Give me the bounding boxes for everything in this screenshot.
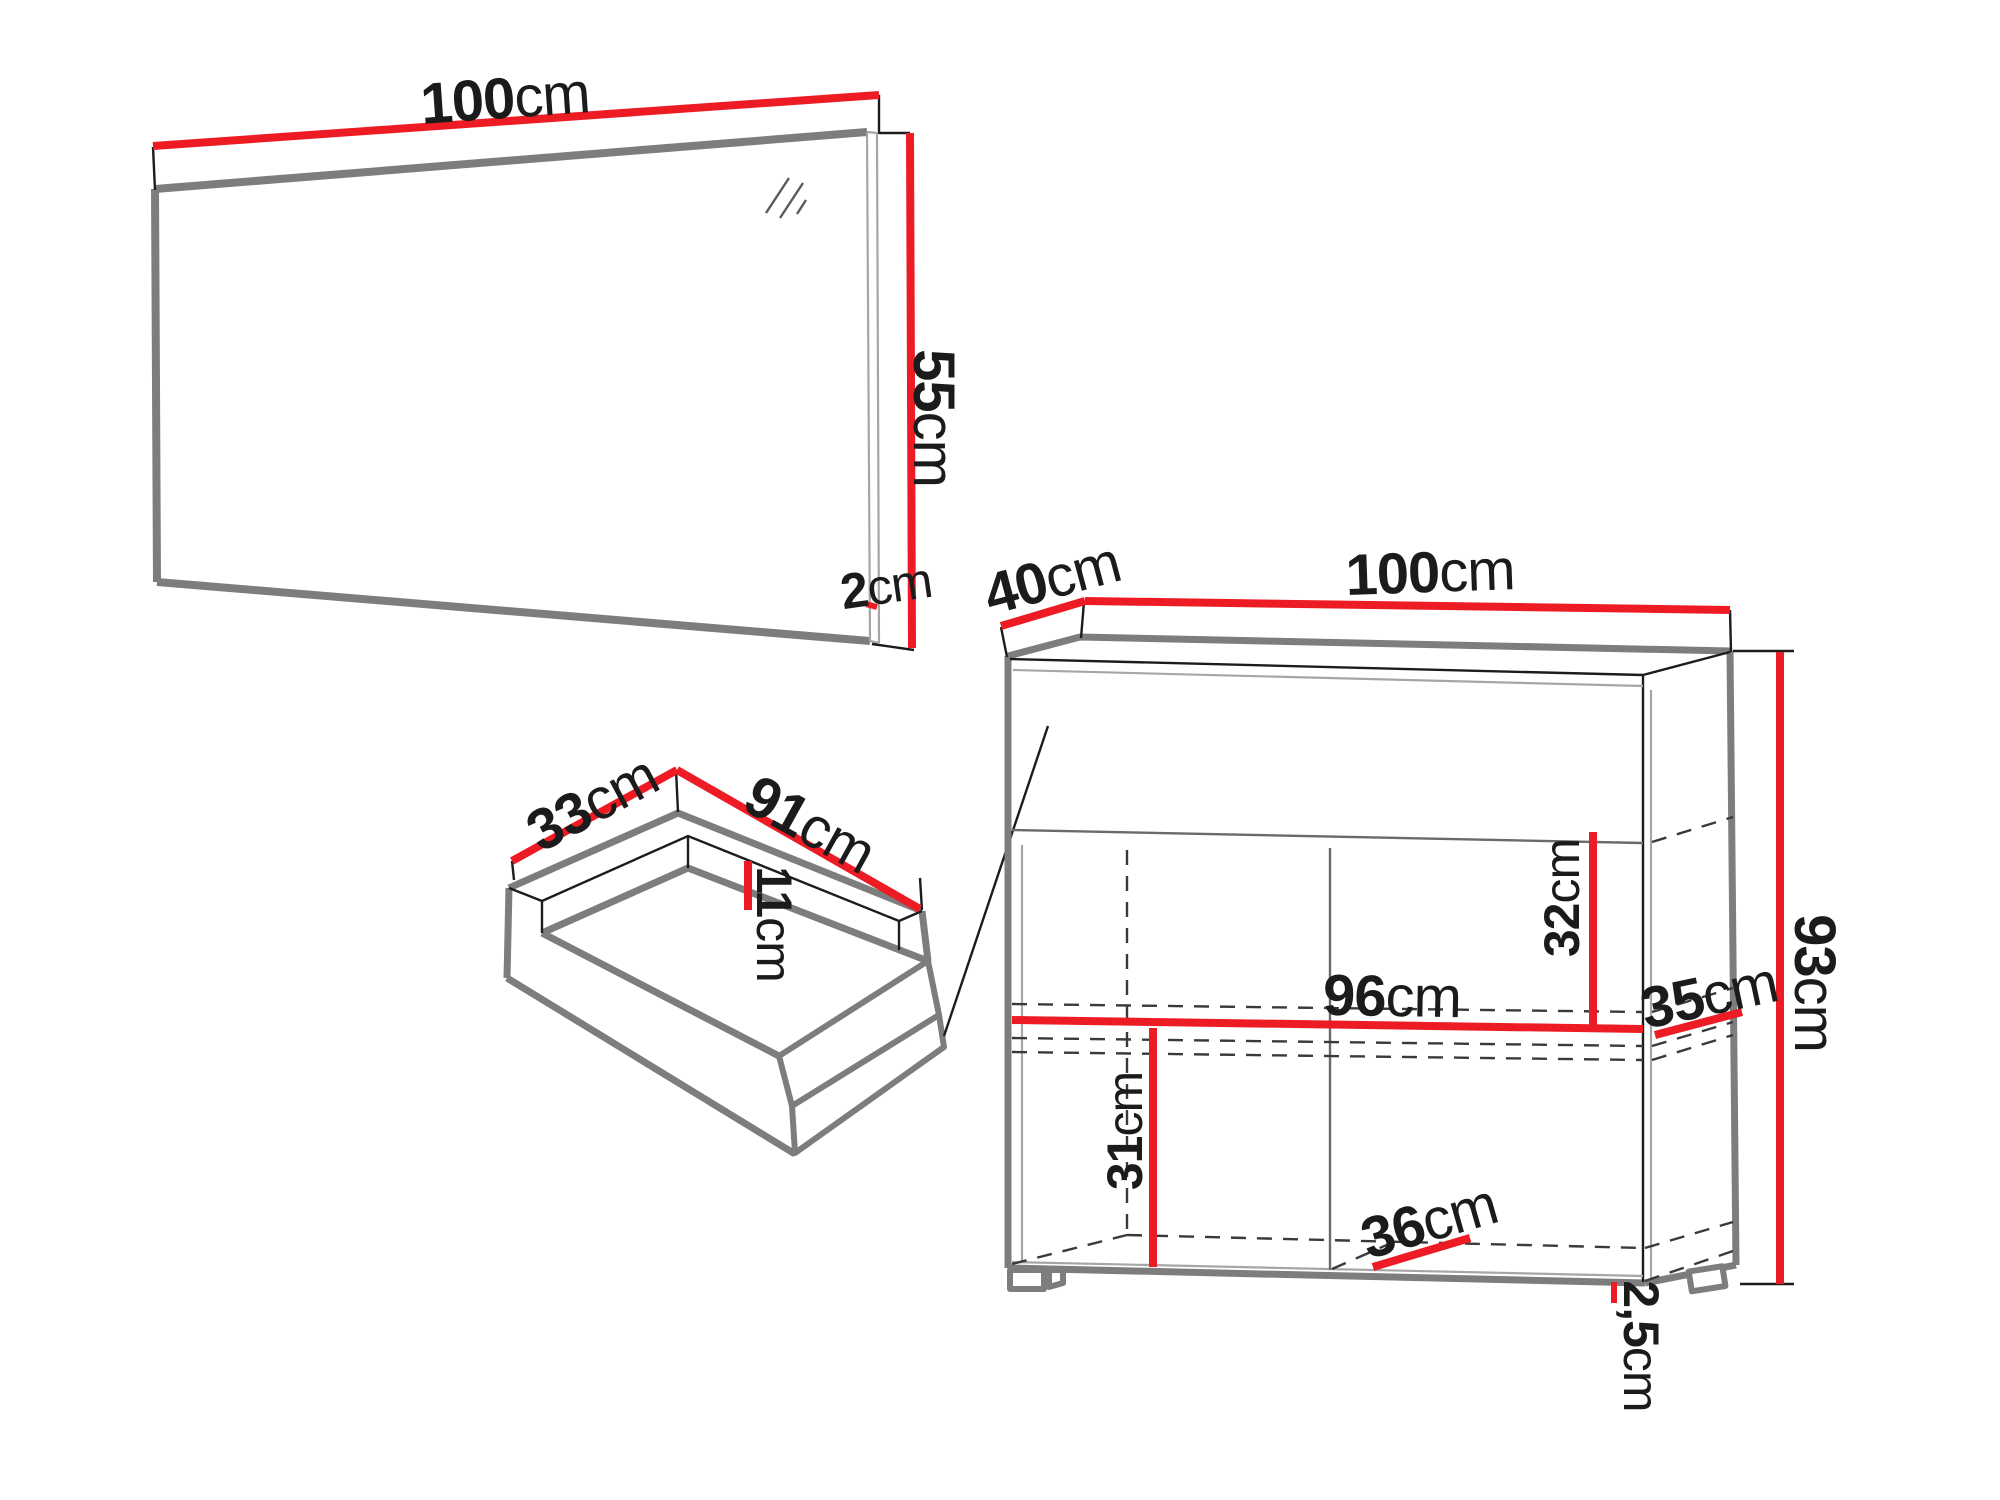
cabinet-inner-width-value: 96 — [1323, 962, 1387, 1028]
mirror-height-ext-bottom — [872, 644, 914, 650]
cabinet-inner-width-label: 96cm — [1323, 962, 1462, 1029]
cabinet-upper-inner-height-value: 32 — [1534, 904, 1590, 958]
furniture-dimension-diagram: 100cm 55cm 2cm 33cm 91cm 11cm 40cm 100cm… — [0, 0, 2000, 1500]
cabinet-right-foot — [1689, 1266, 1726, 1291]
drawer-bottom-silhouette — [507, 978, 795, 1154]
mirror-height-label: 55cm — [902, 349, 967, 487]
mirror-depth-label: 2cm — [837, 552, 935, 620]
cabinet-bottom-inner-depth-label: 36cm — [1354, 1171, 1504, 1271]
cabinet-width-value: 100 — [1344, 539, 1440, 607]
drawer-right-cap-edge — [922, 911, 928, 961]
mirror-drawing — [155, 132, 879, 643]
cabinet-width-label: 100cm — [1344, 537, 1515, 608]
cabinet-height-value: 93 — [1783, 914, 1848, 977]
mirror-height-value: 55 — [902, 349, 967, 412]
cabinet-hidden-bottom-left-diagonal — [1012, 1235, 1127, 1264]
cabinet-height-label: 93cm — [1783, 914, 1848, 1052]
cabinet-hidden-band-side-edge — [1652, 817, 1733, 842]
cabinet-lower-inner-height-value: 31 — [1097, 1136, 1153, 1190]
cabinet-depth-tick-bend — [1081, 602, 1084, 638]
mirror-left-edge — [155, 189, 157, 582]
drawer-depth-label: 33cm — [516, 742, 668, 864]
cabinet-upper-inner-height-label: 32cm — [1534, 839, 1590, 957]
dimension-labels: 100cm 55cm 2cm 33cm 91cm 11cm 40cm 100cm… — [418, 60, 1847, 1412]
drawer-height-value: 11 — [746, 866, 802, 917]
drawer-drawing — [507, 813, 944, 1154]
mirror-height-unit: cm — [902, 412, 967, 487]
cabinet-foot-height-value: 2,5 — [1613, 1280, 1669, 1347]
mirror-width-value: 100 — [418, 65, 516, 136]
drawer-pointer-line — [944, 726, 1048, 1036]
cabinet-foot-height-label: 2,5cm — [1613, 1280, 1669, 1411]
cabinet-foot-height-unit: cm — [1613, 1347, 1669, 1412]
drawer-rim-right-endcap — [899, 911, 922, 921]
cabinet-upper-inner-height-unit: cm — [1534, 839, 1590, 904]
cabinet-lower-inner-height-unit: cm — [1097, 1072, 1153, 1137]
drawer-height-label: 11cm — [746, 866, 802, 982]
drawer-back-corner-tick — [676, 770, 678, 812]
cabinet-bottom-inner-depth-unit: cm — [1414, 1171, 1504, 1254]
cabinet-left-foot — [1010, 1270, 1063, 1289]
drawer-rim-left-endcap — [509, 888, 542, 901]
cabinet-lower-inner-height-label: 31cm — [1097, 1072, 1153, 1190]
cabinet-inner-depth-unit: cm — [1696, 949, 1783, 1028]
extension-lines — [153, 95, 1794, 1284]
mirror-width-label: 100cm — [418, 60, 591, 137]
mirror-side-bottom-cap — [870, 641, 879, 643]
mirror-width-unit: cm — [512, 60, 592, 130]
drawer-floor-left-edge — [542, 933, 779, 1056]
drawer-left-cap-edge — [507, 888, 509, 978]
cabinet-top-right-slant-edge — [1643, 652, 1730, 675]
drawer-height-unit: cm — [746, 917, 802, 982]
cabinet-bottom-edge — [1008, 1268, 1645, 1283]
mirror-width-tick-left — [153, 147, 155, 190]
cabinet-height-unit: cm — [1783, 977, 1848, 1052]
mirror-side-top-cap — [867, 132, 877, 133]
cabinet-depth-tick-left — [1001, 627, 1007, 657]
cabinet-inner-width-unit: cm — [1385, 963, 1461, 1029]
cabinet-width-tick-right — [1730, 610, 1731, 652]
mirror-glare-icon — [766, 178, 806, 218]
cabinet-inner-depth-label: 35cm — [1635, 949, 1783, 1041]
mirror-depth-unit: cm — [863, 552, 935, 616]
cabinet-width-unit: cm — [1438, 537, 1516, 605]
mirror-bottom-edge — [157, 582, 870, 641]
dimension-lines — [153, 95, 1780, 1303]
diagram-canvas: 100cm 55cm 2cm 33cm 91cm 11cm 40cm 100cm… — [0, 0, 2000, 1500]
cabinet-top-back-edge — [1008, 637, 1730, 656]
